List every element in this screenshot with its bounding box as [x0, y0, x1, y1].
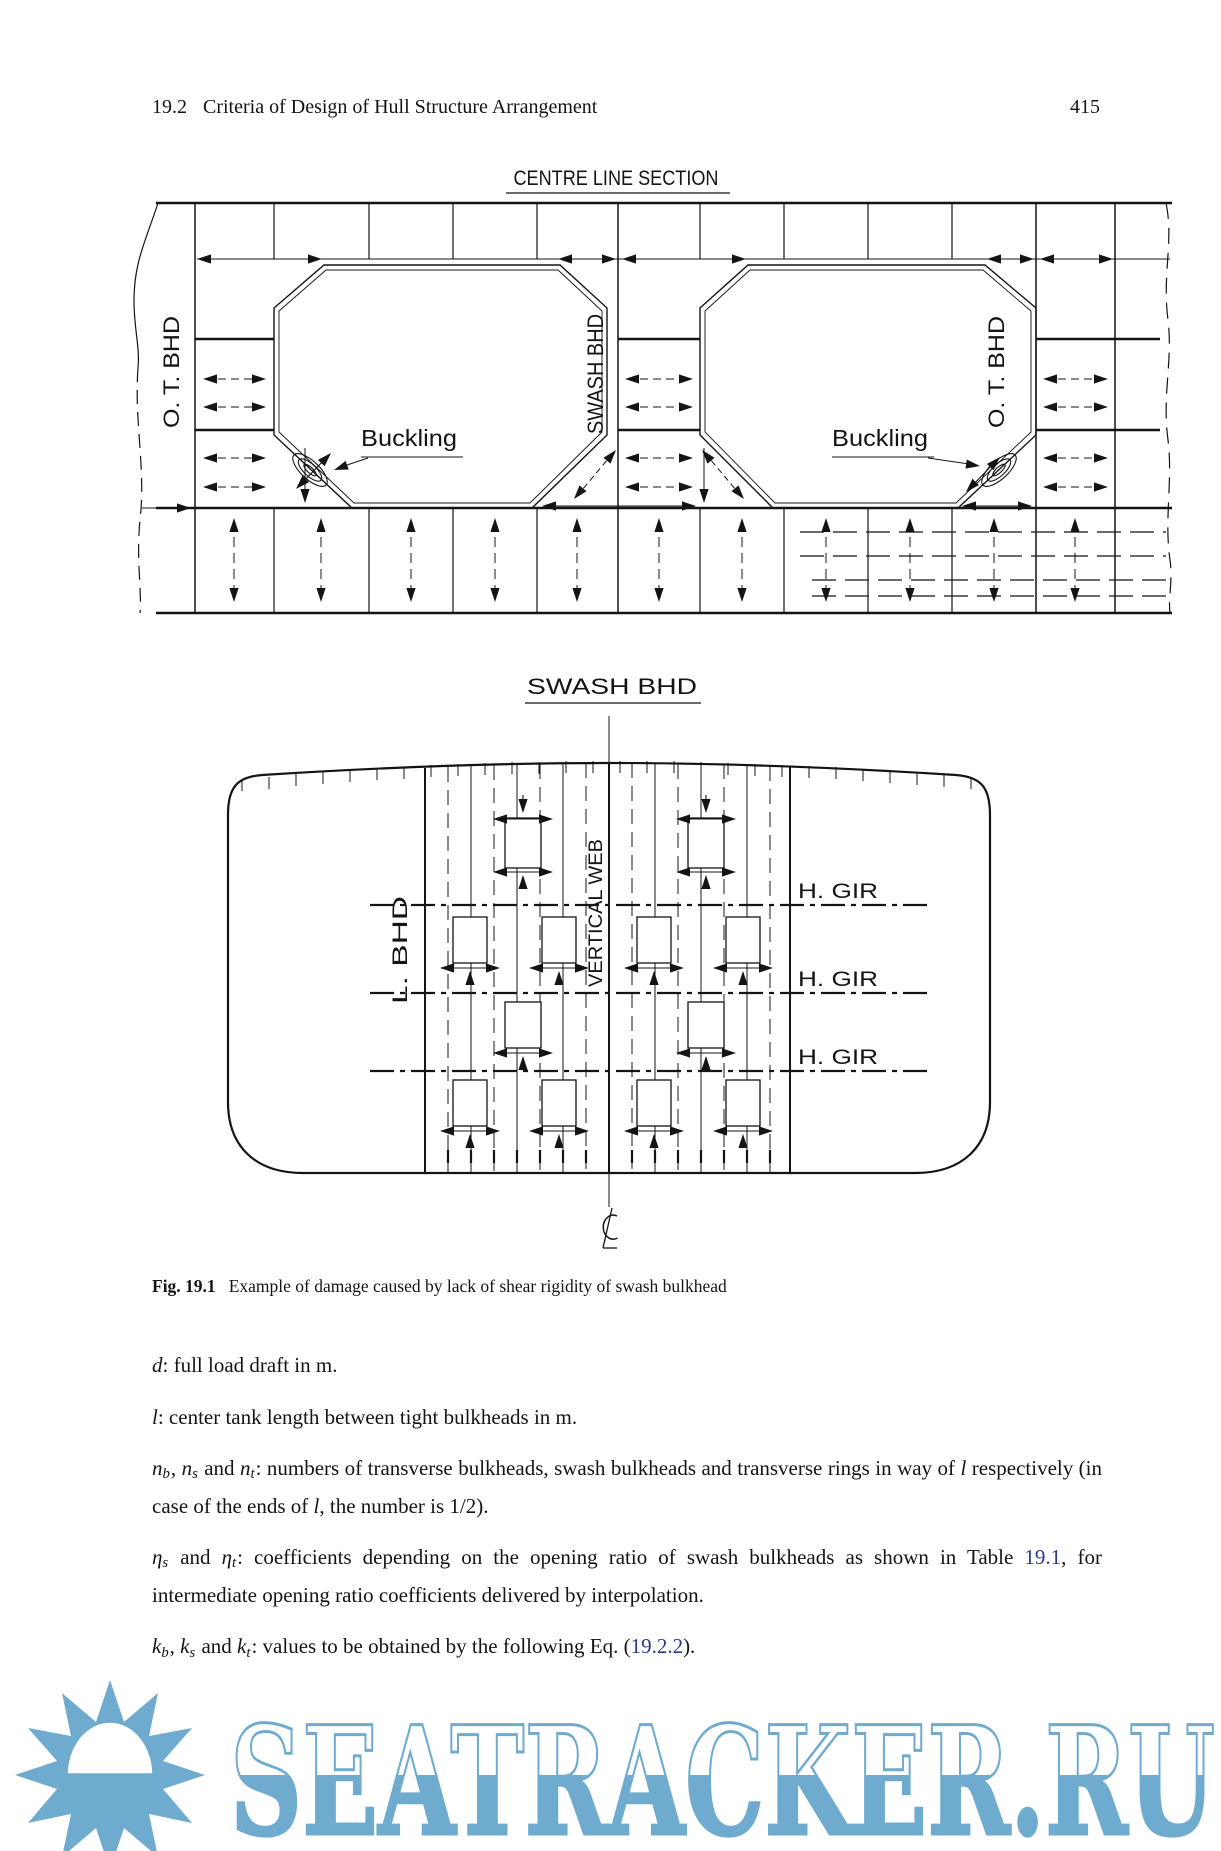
var-k: k [152, 1634, 161, 1658]
book-page: 19.2Criteria of Design of Hull Structure… [0, 0, 1221, 1851]
var-eta: η [152, 1545, 162, 1569]
vertical-web-label: VERTICAL WEB [586, 839, 607, 987]
sub-t: t [232, 1555, 236, 1571]
var-n: n [240, 1456, 251, 1480]
text: : coefficients depending on the opening … [237, 1545, 1024, 1569]
var-n: n [152, 1456, 163, 1480]
var-k: k [180, 1634, 189, 1658]
paragraph-eta: ηs and ηt: coefficients depending on the… [152, 1542, 1102, 1611]
paragraph-l: l: center tank length between tight bulk… [152, 1402, 1102, 1434]
figure-caption: Fig. 19.1Example of damage caused by lac… [152, 1276, 1092, 1297]
ot-bhd-left-label: O. T. BHD [159, 316, 184, 428]
h-gir-label-1: H. GIR [798, 880, 878, 903]
text: : center tank length between tight bulkh… [158, 1405, 577, 1429]
table-19-1-link[interactable]: 19.1 [1024, 1545, 1061, 1569]
text: : full load draft in m. [163, 1353, 338, 1377]
bulkhead-shear-arrowheads [203, 374, 1108, 491]
eq-19-2-2-link[interactable]: 19.2.2 [631, 1634, 684, 1658]
sub-s: s [190, 1645, 196, 1661]
tank1-outline [274, 265, 607, 508]
swash-bhd-label: SWASH BHD [583, 314, 608, 434]
grillage-grid [800, 532, 1166, 596]
double-bottom-arrows [234, 521, 1075, 599]
buckling-label-left: Buckling [361, 425, 457, 451]
sub-t: t [251, 1466, 255, 1482]
body-text: d: full load draft in m. l: center tank … [152, 1350, 1102, 1689]
left-break-line [134, 203, 158, 368]
text: and [199, 1456, 240, 1480]
var-eta: η [222, 1545, 232, 1569]
paragraph-n: nb, ns and nt: numbers of transverse bul… [152, 1453, 1102, 1522]
paragraph-k: kb, ks and kt: values to be obtained by … [152, 1631, 1102, 1669]
text: ). [683, 1634, 695, 1658]
figure1-title: CENTRE LINE SECTION [514, 167, 719, 190]
sub-b: b [161, 1645, 168, 1661]
figure-caption-label: Fig. 19.1 [152, 1276, 216, 1296]
bulkhead-shear-arrows [205, 379, 1106, 487]
text: : numbers of transverse bulkheads, swash… [256, 1456, 961, 1480]
buckling-mark-left [288, 448, 332, 491]
var-n: n [182, 1456, 193, 1480]
text: , the number is 1/2). [319, 1494, 488, 1518]
watermark: SEATRACKER.RU SEATRACKER.RU [15, 1680, 1215, 1851]
text: , [171, 1456, 182, 1480]
sub-b: b [163, 1466, 170, 1482]
ot-bhd-right-label: O. T. BHD [984, 316, 1009, 428]
text: and [169, 1545, 221, 1569]
centreline-symbol [603, 1173, 618, 1248]
h-gir-label-2: H. GIR [798, 968, 878, 991]
buckling-label-right: Buckling [832, 425, 928, 451]
right-break-line [1166, 203, 1171, 613]
sub-s: s [192, 1466, 198, 1482]
var-k: k [237, 1634, 246, 1658]
text: , [170, 1634, 181, 1658]
figure2-title: SWASH BHD [527, 674, 697, 699]
sub-s: s [162, 1555, 168, 1571]
figure-caption-text: Example of damage caused by lack of shea… [229, 1276, 727, 1296]
paragraph-d: d: full load draft in m. [152, 1350, 1102, 1382]
text: : values to be obtained by the following… [251, 1634, 630, 1658]
h-gir-label-3: H. GIR [798, 1046, 878, 1069]
deck-ticks [242, 761, 971, 791]
l-bhd-label: L. BHD [389, 896, 412, 1004]
figure2-swash-bhd: SWASH BHD H. GIR H. GIR H. GIR L. BHD VE… [228, 674, 990, 1248]
figure1-centre-line-section: CENTRE LINE SECTION [134, 167, 1172, 613]
var-d: d [152, 1353, 163, 1377]
sub-t: t [246, 1645, 250, 1661]
text: and [196, 1634, 237, 1658]
